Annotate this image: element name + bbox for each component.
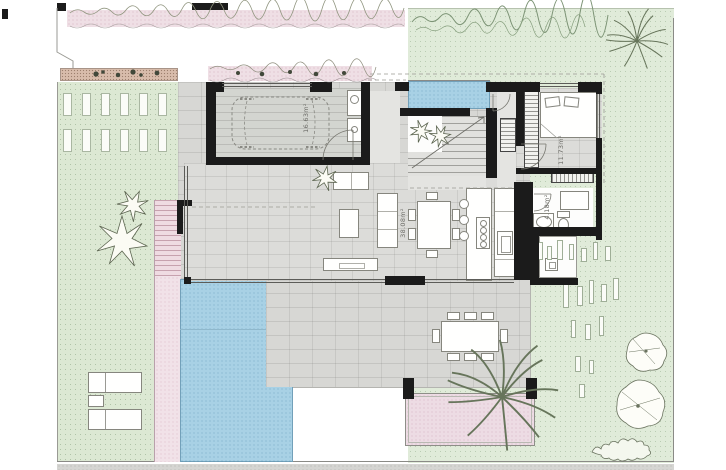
paver [63,93,72,116]
wall [516,88,524,146]
wall [486,82,540,92]
gate-marker [192,3,228,10]
sofa-two-seat [333,172,369,190]
outdoor-dining-table [441,321,499,352]
left-flower-bed [60,68,178,81]
wall [400,108,470,116]
pool-step-line [180,329,266,330]
bedroom-closet [524,90,539,168]
wall [310,82,332,92]
dining-chair [426,192,438,200]
washer-drum-icon [350,95,359,104]
outdoor-chair [447,312,460,320]
outdoor-chair [481,312,494,320]
lawn-pavers [63,93,167,152]
paver [101,93,110,116]
bed [540,92,598,138]
wall [516,168,602,174]
outdoor-chair [500,329,508,343]
bathroom-area-label: 4.18m² [543,194,551,219]
wall [486,108,497,178]
boundary-right [673,18,674,461]
wall-tick-top [57,3,66,11]
paver [63,129,72,152]
water-feature-edge [408,80,490,81]
sun-lounger [88,409,142,430]
paver [82,93,91,116]
wall-tick-left [2,9,8,19]
outdoor-chair [481,353,494,361]
dining-table [417,201,451,249]
paver [101,129,110,152]
outdoor-chair [432,329,440,343]
top-boundary-hedge-band [67,10,405,27]
wall [530,236,539,284]
kitchen-south-glazing [425,279,514,283]
wall [206,157,370,165]
floor-plan-canvas: 16.63m² 38.08m² 11.73m² 4.18m² [0,0,726,470]
wall [206,82,216,165]
dining-chair [408,228,416,240]
outdoor-chair [464,312,477,320]
living-west-glazing [184,166,188,277]
pillow [564,96,580,108]
paver [158,129,167,152]
stair-landing [408,116,442,152]
wall [596,82,602,94]
hall-closet [500,118,516,152]
garage-floor [214,88,361,157]
dining-chair [408,209,416,221]
bottom-edge-strip [57,464,674,470]
lounger-side-table [88,395,104,407]
wall [530,278,578,285]
living-south-glazing [191,279,385,283]
kitchen-sink [497,231,513,255]
bar-stool [459,231,469,241]
utility-sink-icon [351,126,358,133]
sofa-three-seat [377,193,398,248]
paver [158,93,167,116]
pool-side-path [154,276,181,462]
wall [385,276,425,285]
entry-porch-floor [365,91,400,163]
armchair [339,209,359,238]
boundary-bottom [57,461,674,462]
outdoor-chair [464,353,477,361]
wall [533,227,596,236]
wall [184,277,191,284]
pillow [544,96,560,108]
paver [139,93,148,116]
pergola-planter [405,393,535,446]
tv-sideboard [323,258,378,271]
bedroom-area-label: 11.73m² [557,135,565,165]
wall [596,138,602,240]
paver [139,129,148,152]
living-area-label: 38.08m² [399,208,407,238]
paver [120,93,129,116]
bedroom-side-window [596,94,600,138]
wall [395,82,409,91]
dining-chair [426,250,438,258]
paver [82,129,91,152]
pergola-post-left [403,378,414,399]
garage-roof-planting [208,66,372,81]
sun-lounger [88,372,142,393]
wall [361,82,370,165]
garage-area-label: 16.63m² [302,103,310,133]
garage-door [222,83,312,87]
bedroom-window [540,83,578,87]
bar-stool [459,215,469,225]
outdoor-chair [447,353,460,361]
bar-stool [459,199,469,209]
terrace-corner-wall [177,200,183,234]
entrance-water-feature [408,81,490,109]
paver [120,129,129,152]
cooktop [476,217,490,249]
